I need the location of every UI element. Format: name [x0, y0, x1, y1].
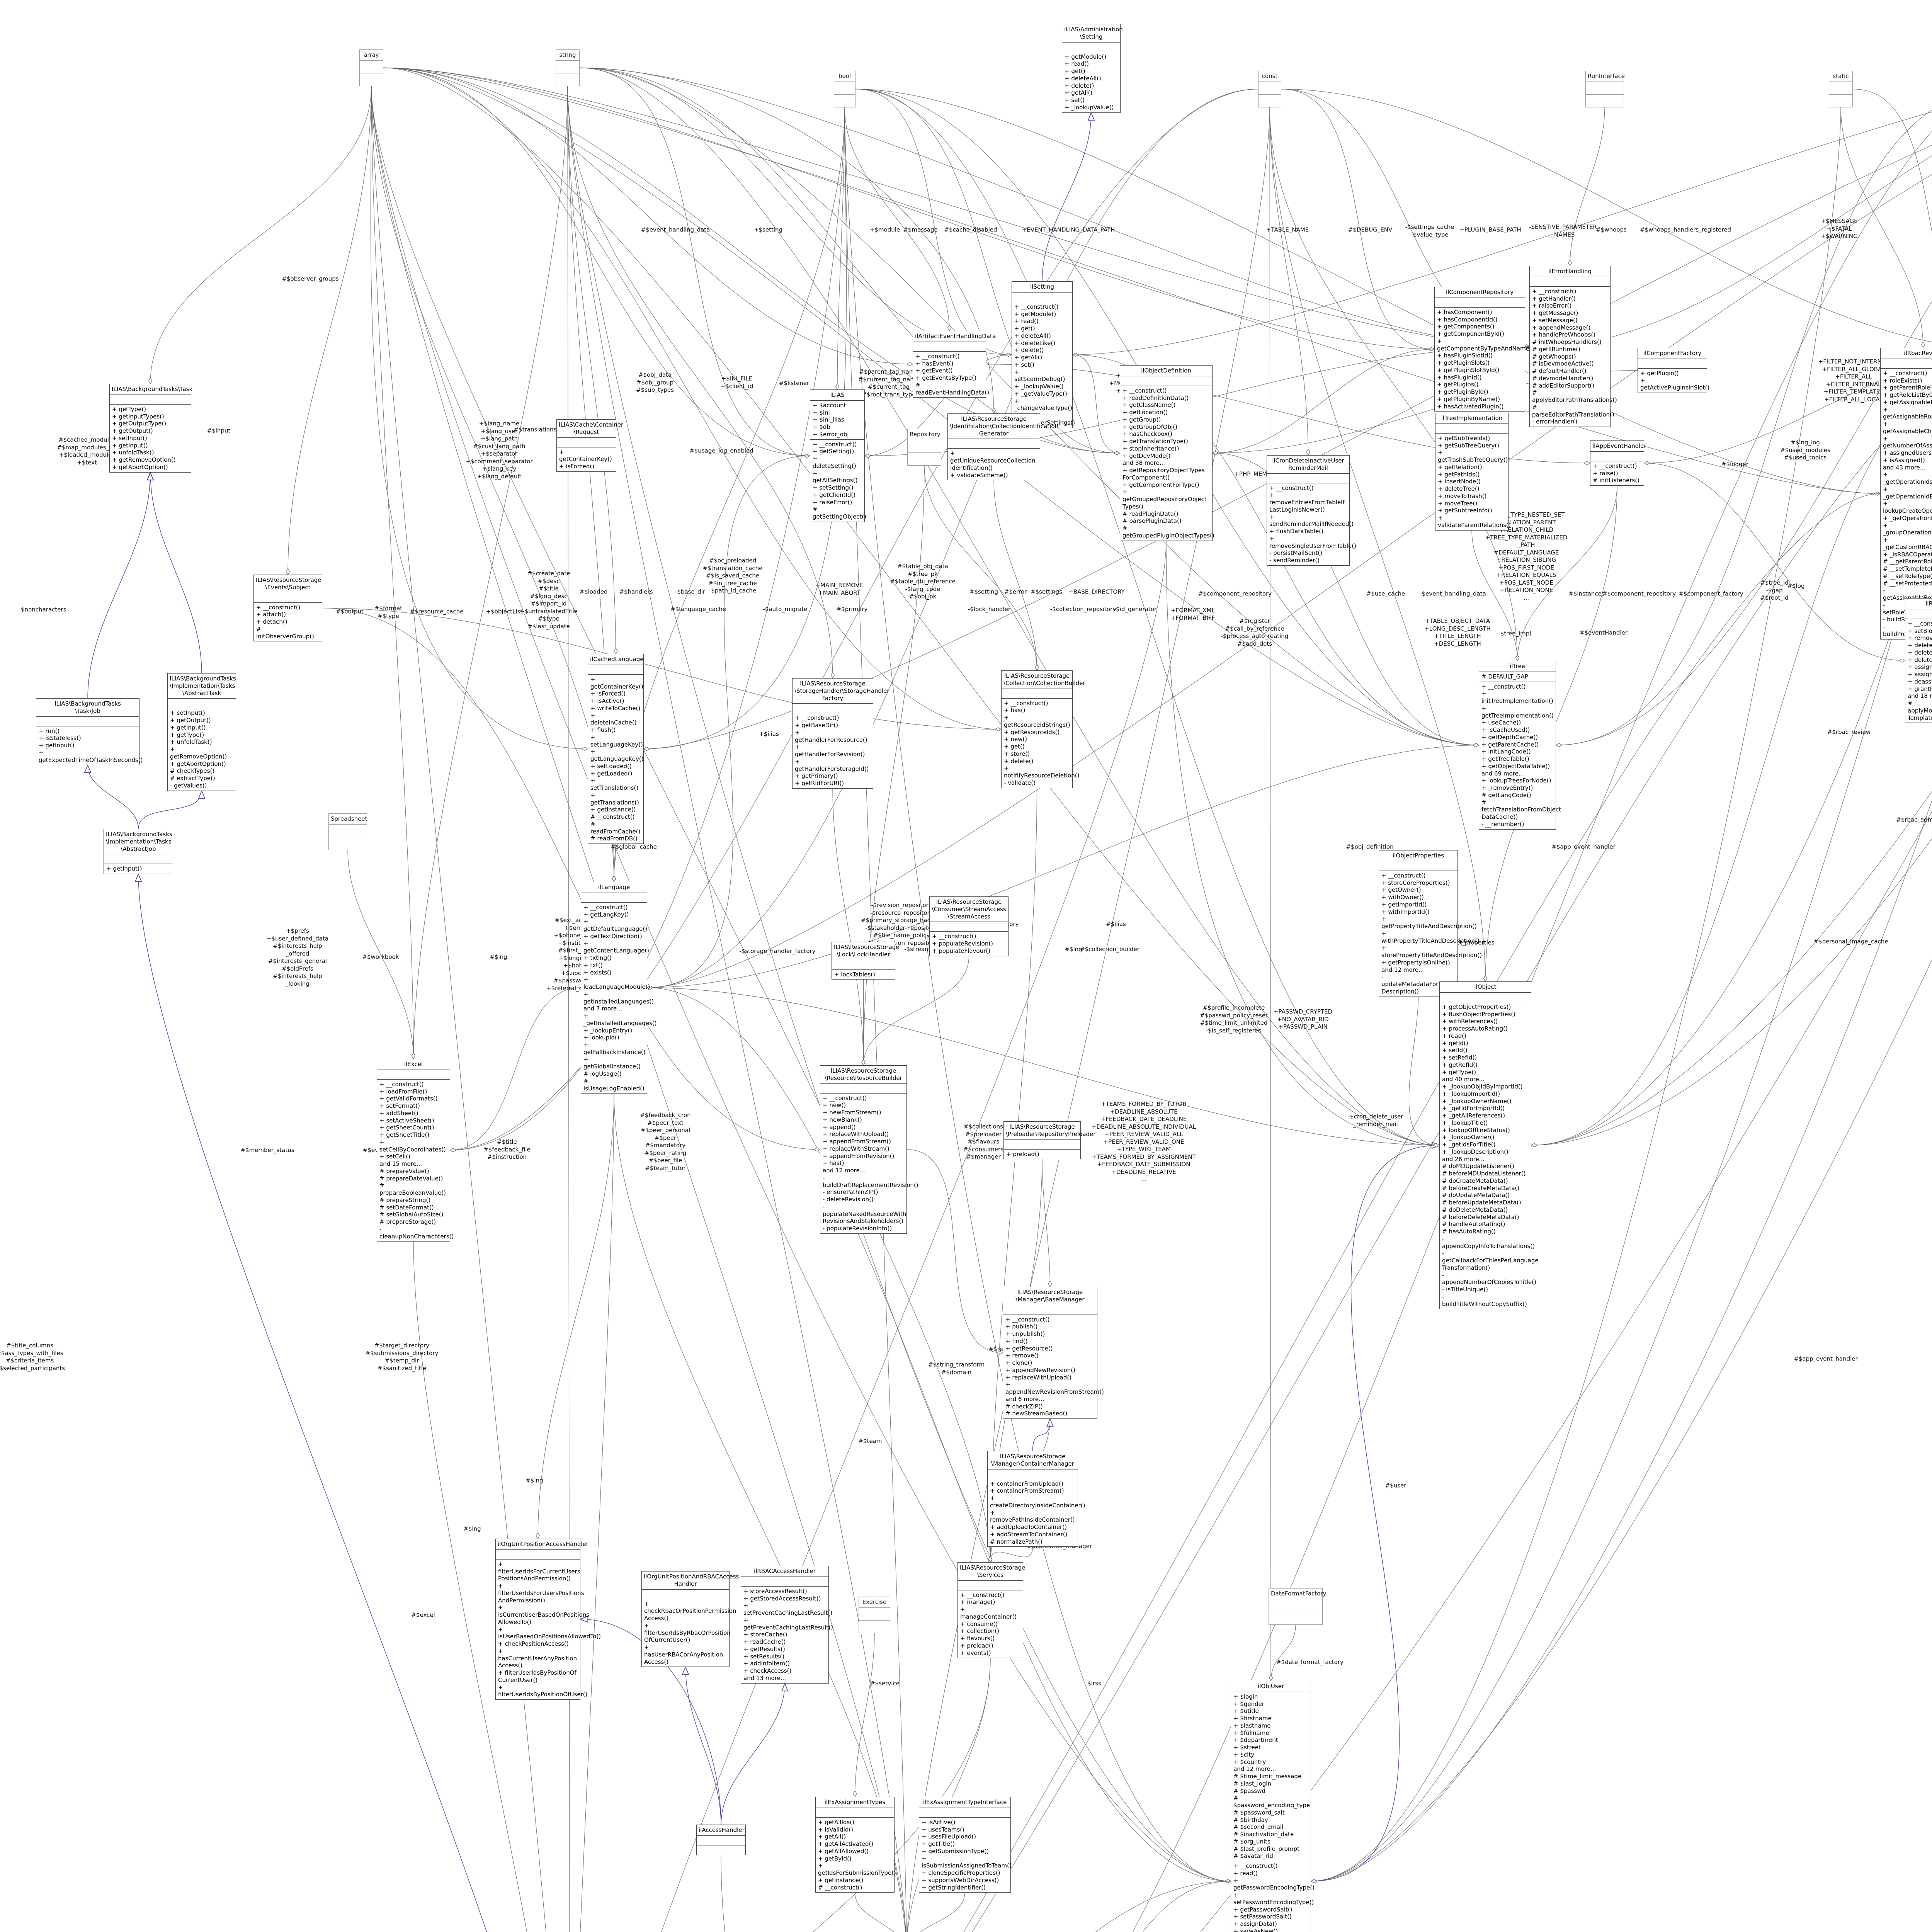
class-acch[interactable]: ilAccessHandler	[696, 1825, 746, 1855]
class-eati[interactable]: ilExAssignmentTypeInterface+ isActive() …	[919, 1797, 1011, 1893]
aggregation-edge-sta-logr	[1853, 89, 1932, 350]
class-run[interactable]: RunInterface	[1585, 71, 1624, 107]
aggregation-edge-str-obj	[580, 68, 1439, 1146]
aggregation-edge-dff-usr	[1271, 1625, 1296, 1681]
class-name: ilArtifactEventHandlingData	[913, 331, 986, 342]
class-cig[interactable]: ILIAS\ResourceStorage \Identification\Co…	[947, 413, 1040, 480]
class-lng[interactable]: ilLanguage+ __construct() + getLangKey()…	[581, 882, 647, 1094]
class-odef[interactable]: ilObjectDefinition+ __construct() + read…	[1120, 365, 1213, 541]
inheritance-edge-ajob-job	[88, 765, 138, 829]
class-methods: + containerFromUpload() + containerFromS…	[988, 1479, 1078, 1547]
class-methods	[360, 73, 383, 86]
class-attributes	[1379, 861, 1458, 871]
class-name: ilAccessHandler	[697, 1825, 745, 1836]
class-methods: + __construct() + getLangKey() + getDefa…	[581, 903, 647, 1094]
class-methods: + __construct() + setBlockedStatus() + r…	[1905, 619, 1932, 723]
class-attributes	[1269, 1599, 1322, 1612]
aggregation-edge-boo-set	[855, 89, 1012, 355]
class-methods: + filterUserIdsForCurrentUsers Positions…	[496, 1560, 580, 1699]
class-name: string	[556, 50, 579, 61]
class-attributes	[832, 960, 895, 970]
inheritance-edge-usr-obj	[1311, 1145, 1439, 1881]
class-methods	[1829, 95, 1852, 107]
aggregation-edge-arr-obj	[383, 68, 1439, 1146]
class-shf[interactable]: ILIAS\ResourceStorage \StorageHandler\St…	[792, 678, 873, 789]
class-methods: + getModule() + read() + get() + deleteA…	[1062, 52, 1120, 112]
class-attributes	[1905, 609, 1932, 619]
class-repo[interactable]: Repository	[907, 429, 941, 466]
class-name: array	[360, 50, 383, 61]
aggregation-edge-str-ilias	[580, 68, 810, 456]
class-attributes	[1120, 376, 1212, 386]
aggregation-edge-cst-usr	[1270, 107, 1271, 1681]
class-methods	[834, 95, 855, 107]
class-name: ilComponentRepository	[1435, 287, 1525, 298]
class-ouprh[interactable]: ilOrgUnitPositionAndRBACAccess Handler+ …	[641, 1571, 730, 1667]
class-ajob[interactable]: ILIAS\BackgroundTasks \Implementation\Ta…	[104, 829, 173, 874]
class-methods: + lockTables()	[832, 970, 895, 980]
class-methods: + __construct() + has() + getResourceIdS…	[1002, 699, 1072, 788]
class-attributes	[741, 1577, 828, 1587]
aggregation-edge-arr-art	[383, 68, 913, 364]
aggregation-edge-set-odef	[1073, 355, 1120, 453]
class-methods: + getSubTreeIds() + getSubTreeQuery() + …	[1435, 434, 1508, 530]
class-stra[interactable]: ILIAS\ResourceStorage \Consumer\StreamAc…	[929, 896, 1009, 956]
class-name: ilExAssignmentTypes	[816, 1797, 894, 1808]
class-attributes	[1530, 277, 1610, 287]
class-radm[interactable]: ilRbacAdmin+ __construct() + setBlockedS…	[1905, 598, 1932, 723]
inheritance-edge-set-adm	[1042, 113, 1091, 281]
class-methods: + __construct() + readDefinitionData() +…	[1120, 386, 1212, 541]
class-name: ILIAS\Cache\Container \Request	[557, 420, 616, 438]
class-methods: + __construct() + raise() # initListener…	[1590, 461, 1644, 485]
class-methods	[859, 1621, 890, 1633]
class-oupah[interactable]: ilOrgUnitPositionAccessHandler+ filterUs…	[495, 1539, 580, 1700]
class-methods: + getUniqueResourceCollection Identifica…	[948, 449, 1040, 480]
aggregation-edge-sta-rrev	[1841, 107, 1923, 348]
class-name: ILIAS\BackgroundTasks \Task\Job	[36, 699, 139, 717]
class-cbld[interactable]: ILIAS\ResourceStorage \Collection\Collec…	[1001, 670, 1073, 788]
class-name: ilRBACAccessHandler	[741, 1566, 828, 1577]
class-name: ILIAS\ResourceStorage \Manager\Container…	[988, 1451, 1078, 1469]
class-obj[interactable]: ilObject+ getObjectProperties() + flushO…	[1439, 981, 1531, 1309]
class-name: ilErrorHandling	[1530, 266, 1610, 277]
aggregation-edge-cst-crep	[1281, 89, 1434, 349]
class-methods: + __construct() + manage() + manageConta…	[958, 1590, 1023, 1658]
aggregation-edge-run-errh	[1570, 107, 1605, 266]
class-task[interactable]: ILIAS\BackgroundTasks\Task+ getType() + …	[109, 384, 191, 473]
class-methods	[1586, 95, 1624, 107]
class-errh[interactable]: ilErrorHandling+ __construct() + getHand…	[1529, 266, 1611, 427]
class-attributes	[581, 893, 647, 903]
class-name: ilObjectProperties	[1379, 850, 1458, 861]
aggregation-edge-lng-jobx	[570, 1094, 614, 1932]
aggregation-edge-aevh-tree	[1517, 486, 1617, 661]
class-attributes	[360, 61, 383, 73]
class-name: ILIAS\BackgroundTasks\Task	[110, 384, 191, 395]
class-name: ILIAS\ResourceStorage \Resource\Resource…	[820, 1066, 906, 1084]
class-name: ilRbacAdmin	[1905, 599, 1932, 609]
class-methods: + __construct() + initTreeImplementation…	[1479, 682, 1556, 829]
class-methods	[329, 837, 367, 850]
class-dff[interactable]: DateFormatFactory	[1269, 1588, 1323, 1625]
class-name: ILIAS\BackgroundTasks \Implementation\Ta…	[168, 673, 236, 699]
class-arr[interactable]: array	[359, 49, 383, 86]
class-set[interactable]: ilSetting+ __construct() + getModule() +…	[1012, 281, 1073, 428]
class-usr[interactable]: ilObjUser+ $login + $gender + $utitle + …	[1231, 1681, 1311, 1932]
class-attributes	[1435, 424, 1508, 434]
class-attributes	[958, 1581, 1023, 1590]
class-methods: + __construct() + hasEvent() + getEvent(…	[913, 352, 986, 398]
aggregation-edge-subj-cbld	[322, 608, 1001, 730]
class-name: ILIAS\ResourceStorage \Identification\Co…	[948, 414, 1040, 439]
class-name: ilObjUser	[1231, 1681, 1311, 1692]
class-subj[interactable]: ILIAS\ResourceStorage \Events\Subject+ _…	[253, 575, 322, 641]
aggregation-edge-arr-cbld	[383, 68, 1001, 730]
class-methods: + __construct() + read() + getPasswordEn…	[1231, 1861, 1311, 1932]
class-methods: + __construct() + publish() + unpublish(…	[1003, 1315, 1097, 1419]
class-name: ILIAS\BackgroundTasks \Implementation\Ta…	[104, 829, 173, 854]
class-attributes	[930, 922, 1008, 932]
class-attributes: + $account + $ini + $ini_ilias + $db + $…	[810, 401, 864, 440]
aggregation-edge-ilias-lng	[647, 456, 810, 988]
class-timp[interactable]: ilTreeImplementation+ getSubTreeIds() + …	[1435, 413, 1509, 531]
class-atask[interactable]: ILIAS\BackgroundTasks \Implementation\Ta…	[167, 673, 236, 791]
class-name: ILIAS\ResourceStorage \Consumer\StreamAc…	[930, 897, 1008, 922]
inheritance-edge-job-task	[88, 473, 150, 698]
class-attributes	[1004, 1140, 1080, 1150]
class-tree[interactable]: ilTree# DEFAULT_GAP+ __construct() + ini…	[1479, 661, 1556, 830]
class-name: ilLanguage	[581, 882, 647, 893]
class-name: Spreadsheet	[329, 814, 367, 825]
class-name: Repository	[908, 429, 941, 440]
class-attributes: # DEFAULT_GAP	[1479, 672, 1556, 682]
class-name: ilTree	[1479, 661, 1556, 672]
class-methods	[556, 73, 579, 86]
class-methods: + checkRbacOrPositionPermission Access()…	[642, 1599, 729, 1667]
class-rpre[interactable]: ILIAS\ResourceStorage \Preloader\Reposit…	[1003, 1121, 1081, 1159]
class-methods	[1269, 1612, 1322, 1624]
aggregation-edge-arr-clng	[371, 86, 588, 749]
class-methods: + __construct() + getBaseDir() + getHand…	[793, 713, 873, 788]
class-attributes	[1590, 452, 1644, 461]
class-rbld[interactable]: ILIAS\ResourceStorage \Resource\Resource…	[820, 1065, 907, 1234]
class-eat[interactable]: ilExAssignmentTypes+ getAllIds() + isVal…	[815, 1797, 895, 1893]
class-attributes	[948, 439, 1040, 449]
aggregation-edge-arr-tree	[383, 68, 1479, 745]
class-methods: + __construct() + getHandler() + raiseEr…	[1530, 287, 1610, 427]
class-name: ilObjectDefinition	[1120, 366, 1212, 376]
class-attributes	[1435, 298, 1525, 308]
inheritance-edge-acch-rbah	[721, 1684, 785, 1825]
class-methods: + getContainerKey() + isForced() + isAct…	[588, 675, 643, 844]
class-name: ILIAS\ResourceStorage \StorageHandler\St…	[793, 679, 873, 704]
class-name: ilExAssignmentTypeInterface	[919, 1797, 1010, 1808]
aggregation-edge-boo-obj	[855, 89, 1439, 1146]
class-cst[interactable]: const	[1258, 71, 1281, 107]
class-methods: + __construct() + populateRevision() + p…	[930, 932, 1008, 956]
class-name: ilComponentFactory	[1638, 348, 1707, 359]
class-attributes	[1440, 993, 1531, 1002]
class-attributes	[557, 438, 616, 447]
class-methods: + __construct() + loadFromFile() + getVa…	[377, 1080, 450, 1242]
class-exr[interactable]: Exercise	[859, 1597, 890, 1633]
aggregation-edge-eat-ass	[855, 1893, 907, 1932]
class-attributes	[793, 704, 873, 713]
class-attributes: + $login + $gender + $utitle + $firstnam…	[1231, 1692, 1311, 1861]
inheritance-edge-cman-bman	[1033, 1419, 1050, 1451]
aggregation-edge-arr-crep	[383, 68, 1434, 349]
aggregation-edge-str-shf	[568, 86, 833, 678]
class-cfac[interactable]: ilComponentFactory+ getPlugin() + getAct…	[1638, 348, 1707, 393]
class-cron[interactable]: ilCronDeleteInactiveUser ReminderMail+ _…	[1267, 455, 1350, 566]
inheritance-edge-ajob-atask	[138, 791, 202, 829]
class-name: ILIAS\ResourceStorage \Lock\LockHandler	[832, 942, 895, 960]
class-methods: + run() + isStateless() + getInput() + g…	[36, 726, 139, 765]
class-attributes	[919, 1808, 1010, 1818]
class-creq[interactable]: ILIAS\Cache\Container \Request+ getConta…	[556, 419, 616, 472]
class-methods	[908, 453, 941, 465]
class-methods: + __construct() + new() + newFromStream(…	[820, 1094, 906, 1233]
class-name: ilCronDeleteInactiveUser ReminderMail	[1267, 456, 1349, 474]
class-attributes	[1012, 293, 1072, 302]
class-name: ilObject	[1440, 982, 1531, 993]
class-aevh[interactable]: ilAppEventHandler+ __construct() + raise…	[1590, 440, 1644, 486]
aggregation-edge-crep-odef	[1213, 349, 1434, 453]
class-attributes	[1267, 474, 1349, 483]
class-methods: + storeAccessResult() + getStoredAccessR…	[741, 1587, 828, 1683]
class-job[interactable]: ILIAS\BackgroundTasks \Task\Job+ run() +…	[36, 698, 139, 765]
class-attributes	[254, 593, 322, 603]
aggregation-edge-eati-ass	[906, 1893, 965, 1932]
class-name: ilRbacReview	[1881, 348, 1932, 359]
class-crep[interactable]: ilComponentRepository+ hasComponent() + …	[1434, 287, 1525, 412]
class-attributes	[329, 825, 367, 837]
class-attributes	[168, 699, 236, 708]
aggregation-edge-odef-obj	[1166, 541, 1439, 1145]
class-name: ILIAS\ResourceStorage \Collection\Collec…	[1002, 671, 1072, 689]
aggregation-edge-boo-art	[845, 107, 949, 331]
class-methods: + setInput() + getOutput() + getInput() …	[168, 708, 236, 790]
inheritance-edge-jobx-ajob	[138, 874, 570, 1932]
class-bman[interactable]: ILIAS\ResourceStorage \Manager\BaseManag…	[1003, 1287, 1097, 1419]
class-lockh[interactable]: ILIAS\ResourceStorage \Lock\LockHandler+…	[832, 942, 895, 980]
class-attributes	[377, 1070, 450, 1080]
class-methods: + getObjectProperties() + flushObjectPro…	[1440, 1002, 1531, 1309]
aggregation-edge-sprd-xls	[348, 850, 413, 1059]
class-methods	[697, 1845, 745, 1855]
aggregation-edge-arr-ilias	[383, 68, 810, 456]
class-name: ILIAS\ResourceStorage \Preloader\Reposit…	[1004, 1122, 1080, 1140]
aggregation-edge-lng-usr	[647, 988, 1231, 1881]
class-name: ILIAS\ResourceStorage \Services	[958, 1563, 1023, 1581]
aggregation-edge-str-set	[580, 68, 1012, 355]
aggregation-edge-oprops-obj	[1409, 997, 1439, 1145]
class-methods: + __construct() + getModule() + read() +…	[1012, 302, 1072, 428]
class-name: ilAppEventHandler	[1590, 441, 1644, 452]
class-name: const	[1259, 71, 1281, 82]
class-name: RunInterface	[1586, 71, 1624, 82]
class-methods: + getAllIds() + isValidId() + getAll() +…	[816, 1818, 894, 1893]
aggregation-edge-cst-cron	[1270, 107, 1308, 455]
aggregation-edge-boo-xls	[450, 107, 845, 1150]
class-name: ilTreeImplementation	[1435, 413, 1508, 424]
aggregation-edge-arr-errh	[383, 68, 1529, 347]
class-attributes	[1638, 359, 1707, 369]
class-name: bool	[834, 71, 855, 82]
class-attributes	[1062, 43, 1120, 52]
aggregation-edge-lng-oupah	[538, 1094, 614, 1539]
class-ilias[interactable]: ILIAS+ $account + $ini + $ini_ilias + $d…	[810, 389, 865, 522]
class-attributes	[496, 1550, 580, 1560]
class-name: ilOrgUnitPositionAndRBACAccess Handler	[642, 1571, 729, 1590]
inheritance-edge-atask-task	[150, 473, 202, 673]
class-methods: + __construct() + removeEntriesFromTable…	[1267, 483, 1349, 565]
aggregation-edge-cman-srv	[990, 1547, 1033, 1562]
aggregation-edge-arr-subj	[288, 86, 371, 575]
class-name: ilCachedLanguage	[588, 654, 643, 665]
class-name: static	[1829, 71, 1852, 82]
class-str[interactable]: string	[556, 49, 580, 86]
class-adm[interactable]: ILIAS\Administration \Setting+ getModule…	[1062, 24, 1121, 113]
class-methods: + hasComponent() + hasComponentId() + ge…	[1435, 308, 1525, 412]
aggregation-edge-arr-odef	[383, 68, 1120, 453]
aggregation-edge-rbld-bman	[907, 1150, 1003, 1353]
class-attributes	[642, 1590, 729, 1599]
class-clng[interactable]: ilCachedLanguage+ getContainerKey() + is…	[588, 654, 644, 844]
class-xls[interactable]: ilExcel+ __construct() + loadFromFile() …	[377, 1059, 450, 1242]
class-attributes	[588, 665, 643, 675]
class-methods: + __construct() + attach() + detach() # …	[254, 603, 322, 641]
class-attributes	[697, 1836, 745, 1845]
class-attributes	[36, 717, 139, 726]
class-methods: + __construct() + storeCoreProperties() …	[1379, 871, 1458, 997]
class-rrev[interactable]: ilRbacReview+ __construct() + roleExists…	[1880, 348, 1932, 639]
class-attributes	[1829, 82, 1852, 95]
aggregation-edge-arr-srv	[371, 86, 990, 1562]
class-attributes	[110, 395, 191, 405]
class-oprops[interactable]: ilObjectProperties+ __construct() + stor…	[1379, 850, 1458, 997]
class-sprd[interactable]: Spreadsheet	[328, 813, 367, 850]
class-attributes	[1586, 82, 1624, 95]
aggregation-edge-odic-obj	[1531, 386, 1932, 1145]
class-name: ilOrgUnitPositionAccessHandler	[496, 1539, 580, 1550]
class-attributes	[820, 1084, 906, 1094]
aggregation-edge-aevh-radm	[1644, 463, 1905, 661]
class-attributes	[104, 854, 173, 864]
class-cman[interactable]: ILIAS\ResourceStorage \Manager\Container…	[987, 1451, 1078, 1547]
aggregation-edge-timp-tree	[1472, 531, 1517, 661]
class-methods: + getPlugin() + getActivePluginsInSlot()	[1638, 369, 1707, 393]
class-attributes	[1259, 82, 1281, 95]
class-name: ilSetting	[1012, 282, 1072, 293]
class-name: DateFormatFactory	[1269, 1588, 1322, 1599]
class-methods: + getInput()	[104, 864, 173, 874]
class-boo[interactable]: bool	[834, 71, 855, 107]
class-attributes	[988, 1469, 1078, 1479]
aggregation-edge-rpre-bman	[1042, 1159, 1050, 1287]
class-srv[interactable]: ILIAS\ResourceStorage \Services+ __const…	[957, 1562, 1023, 1658]
class-attributes	[859, 1608, 890, 1621]
class-attributes	[1881, 359, 1932, 369]
aggregation-edge-shf-rbld	[833, 789, 864, 1065]
aggregation-edge-boo-ass	[845, 107, 906, 1932]
aggregation-edge-arr-task	[150, 86, 371, 384]
class-methods: + getContainerKey() + isForced()	[557, 447, 616, 471]
class-attributes	[834, 82, 855, 95]
class-attributes	[913, 342, 986, 352]
aggregation-edge-arr-lng	[371, 86, 614, 882]
uml-collaboration-diagram: #$observer_groups#$input-$noncharacters#…	[0, 0, 1932, 1932]
aggregation-edge-dbi-usr	[1311, 121, 1932, 1881]
inheritance-edge-acch-ouprh	[685, 1667, 721, 1825]
class-name: ILIAS\ResourceStorage \Manager\BaseManag…	[1003, 1287, 1097, 1305]
class-name: ilExcel	[377, 1059, 450, 1070]
class-methods: + isActive() + usesTeams() + usesFileUpl…	[919, 1818, 1010, 1893]
class-attributes	[556, 61, 579, 73]
aggregation-edge-cst-xls	[450, 89, 1258, 1150]
class-attributes	[908, 440, 941, 453]
class-sta[interactable]: static	[1829, 71, 1853, 107]
class-attributes	[1003, 1305, 1097, 1315]
class-rbah[interactable]: ilRBACAccessHandler+ storeAccessResult()…	[741, 1566, 829, 1684]
class-name: ILIAS	[810, 390, 864, 401]
aggregation-edge-arr-xls	[371, 86, 413, 1059]
class-methods: + preload()	[1004, 1150, 1080, 1159]
aggregation-edge-str-xls	[413, 86, 568, 1059]
class-attributes	[1002, 689, 1072, 699]
class-methods: + getType() + getInputTypes() + getOutpu…	[110, 405, 191, 472]
class-art[interactable]: ilArtifactEventHandlingData+ __construct…	[913, 331, 986, 398]
class-name: ILIAS\ResourceStorage \Events\Subject	[254, 575, 322, 593]
class-methods	[1259, 95, 1281, 107]
class-attributes	[816, 1808, 894, 1818]
aggregation-edge-cig-cbld	[994, 480, 1037, 670]
aggregation-edge-repo-cbld	[924, 466, 1037, 670]
class-name: ILIAS\Administration \Setting	[1062, 24, 1120, 43]
class-name: Exercise	[859, 1597, 890, 1608]
class-methods: + __construct() + getSetting() + deleteS…	[810, 440, 864, 522]
aggregation-edge-lng-xls	[450, 988, 581, 1150]
